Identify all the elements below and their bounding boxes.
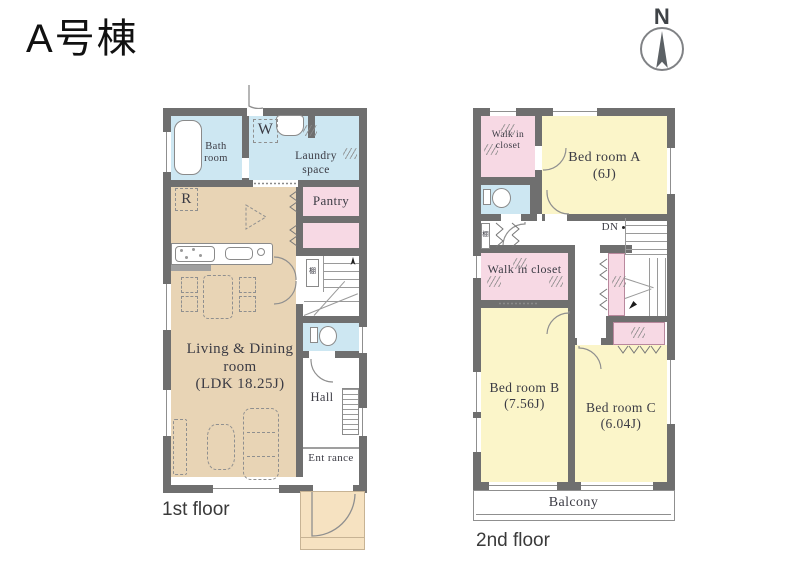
floor1-caption: 1st floor [162, 499, 230, 521]
bedroom-a-name: Bed room A [568, 150, 640, 165]
wall [163, 108, 367, 116]
bifold-door-marks [639, 345, 665, 354]
back-door-arc [247, 85, 264, 109]
stairs-double-door-arc [272, 280, 297, 305]
washroom-label: W [253, 121, 278, 140]
compass-icon [640, 27, 684, 71]
window [581, 482, 653, 490]
window [163, 284, 171, 330]
toilet-2f-door-opening [501, 214, 521, 221]
floorplan-page: A号棟 N [0, 0, 800, 565]
bedroom-c-size: (6.04J) [601, 416, 642, 431]
kitchen-sink [225, 247, 253, 260]
window [553, 108, 597, 116]
ldk-name-line1: Living & Dining [187, 341, 294, 357]
chair [181, 296, 198, 312]
bath-door-opening [242, 158, 249, 178]
faucet [257, 248, 265, 256]
burner [185, 256, 188, 259]
closet-pole-marks [612, 276, 626, 287]
bedroom-b-name: Bed room B [490, 380, 560, 395]
closet-1f [303, 223, 359, 248]
closet-pole-marks [487, 276, 501, 287]
ldk-size: (LDK 18.25J) [196, 376, 285, 392]
chair [239, 277, 256, 293]
closet-pole-marks [631, 327, 645, 338]
burner [192, 248, 195, 251]
balcony-label: Balcony [474, 495, 673, 512]
shelf-label: 棚 [306, 267, 319, 275]
sofa [243, 408, 279, 480]
ldk-name-line2: room [223, 359, 256, 375]
entrance-door-arc [310, 492, 358, 540]
window [473, 372, 481, 412]
burner [199, 254, 202, 257]
chair [239, 296, 256, 312]
window [163, 132, 171, 172]
window [489, 482, 557, 490]
counter-base [171, 265, 211, 271]
bedroom-c-name: Bed room C [586, 400, 656, 415]
stair-treads [625, 218, 667, 254]
laundry-pole-marks [303, 125, 317, 136]
burner [180, 249, 183, 252]
window [473, 256, 481, 278]
chair [181, 277, 198, 293]
page-title: A号棟 [26, 16, 246, 63]
sofa-cushion-line [247, 456, 275, 457]
bifold-door-marks [599, 258, 608, 282]
bedroom-c-door-arc [577, 345, 602, 370]
washbasin [276, 115, 304, 136]
balcony: Balcony [473, 490, 675, 521]
bedroom-b-door-arc [545, 310, 570, 335]
back-door-opening [247, 108, 263, 116]
entrance-label: Ent rance [305, 452, 357, 465]
window [473, 418, 481, 452]
floor1-plan: 棚 Bath room W Laundry space Pantry R Liv… [163, 108, 367, 493]
window [359, 327, 367, 353]
stairs-door-opening [296, 256, 303, 304]
toilet-bowl [319, 326, 337, 346]
bedroom-c-label: Bed room C (6.04J) [575, 400, 667, 432]
bifold-door-marks [289, 224, 298, 248]
hall-door-arc [309, 358, 334, 383]
window [213, 485, 279, 493]
window [667, 148, 675, 194]
closet-pole-marks [549, 276, 563, 287]
wall [303, 216, 359, 223]
bedroom-a-size: (6J) [593, 167, 616, 182]
wic-a-door-opening [535, 146, 542, 170]
hall-door-opening [309, 351, 335, 358]
refrigerator-label: R [175, 191, 198, 209]
sliding-door-track [253, 182, 298, 185]
bifold-door-marks [599, 288, 608, 312]
floor2-caption: 2nd floor [476, 530, 550, 552]
toilet-bowl [492, 188, 511, 208]
stairs-down-label: DN [599, 221, 621, 234]
tv-stand [173, 419, 187, 475]
wall [606, 316, 667, 322]
sofa-cushion-line [247, 432, 275, 433]
bifold-door-marks [511, 222, 520, 248]
wall [568, 245, 575, 482]
bathroom-label: Bath room [192, 141, 240, 166]
laundry-label: Laundry space [283, 150, 349, 177]
porch-step-line [301, 537, 364, 538]
stair-winder [625, 288, 652, 299]
balcony-rail-line [476, 514, 671, 515]
tv-mark [245, 204, 268, 231]
wall [303, 316, 359, 323]
ldk-label: Living & Dining room (LDK 18.25J) [177, 341, 303, 394]
bifold-door-marks [495, 222, 504, 248]
bedroom-b-label: Bed room B (7.56J) [481, 380, 568, 412]
bedroom-c-door-opening [577, 338, 601, 345]
hall-label: Hall [303, 390, 341, 405]
toilet-tank [310, 327, 318, 343]
window [490, 108, 516, 116]
bedroom-a-label: Bed room A (6J) [542, 150, 667, 183]
bedroom-b-size: (7.56J) [504, 396, 545, 411]
stairs-down-arrow [629, 301, 637, 309]
floor2-plan: 棚 DN [473, 108, 675, 490]
stair-winder [304, 301, 359, 302]
shoe-cabinet [342, 388, 359, 435]
wall [606, 316, 613, 345]
bedroom-a-door-opening [545, 214, 567, 221]
stair-winder [625, 254, 667, 255]
bifold-door-marks [289, 190, 298, 214]
wall [530, 185, 537, 221]
porch [300, 491, 365, 550]
window [667, 360, 675, 424]
pantry-label: Pantry [303, 193, 359, 208]
wall [481, 177, 535, 185]
stairs-double-door-arc [272, 256, 297, 281]
entrance-step-line [303, 447, 359, 449]
coffee-table [207, 424, 235, 470]
window [163, 390, 171, 436]
window [359, 408, 367, 436]
stairs-down-dot [622, 226, 625, 229]
wall [303, 248, 359, 256]
dining-table [203, 275, 233, 319]
shelf-label-2f: 棚 [480, 231, 491, 239]
wic-a-label: Walk in closet [484, 130, 532, 152]
wic-b-label: Walk in closet [484, 262, 565, 276]
toilet-tank [483, 189, 491, 205]
bedroom-a-door-arc [545, 190, 570, 215]
compass-needle [653, 31, 671, 68]
wic-b-threshold [498, 302, 538, 305]
